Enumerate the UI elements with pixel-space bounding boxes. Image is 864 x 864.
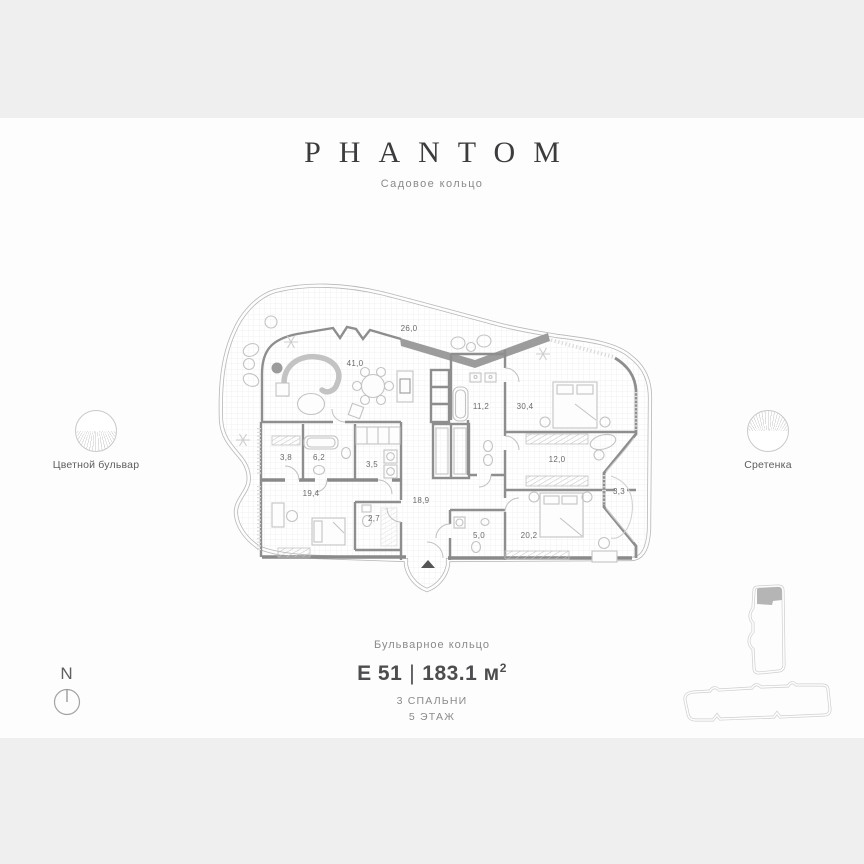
room-area-label-bedroom-2: 19,4 xyxy=(303,489,320,498)
room-area-label-terrace: 26,0 xyxy=(401,324,418,333)
slab-outline xyxy=(685,683,830,720)
sun-half-bottom-icon xyxy=(75,410,117,452)
tower-outline xyxy=(749,586,784,673)
building-locator xyxy=(680,570,850,730)
north-indicator: N xyxy=(37,664,97,716)
unit-area-unit: м xyxy=(484,662,500,685)
unit-area: 183.1 xyxy=(422,662,477,685)
listing-floorplan-page: { "colors": { "background": "#efefef", "… xyxy=(0,0,864,864)
complex-title: PHANTOM xyxy=(0,136,864,170)
headline-separator: | xyxy=(409,662,415,685)
landmark-right: Сретенка xyxy=(698,410,838,471)
room-area-label-master-bedroom: 30,4 xyxy=(517,402,534,411)
room-area-label-bathroom-4: 5,0 xyxy=(473,531,485,540)
room-area-label-living-room: 41,0 xyxy=(347,359,364,368)
complex-subtitle: Садовое кольцо xyxy=(0,178,864,190)
unit-number: Е 51 xyxy=(357,662,402,685)
room-area-label-bathroom-2: 6,2 xyxy=(313,453,325,462)
unit-area-sup: 2 xyxy=(500,661,507,675)
room-area-label-bathroom-3: 2,7 xyxy=(368,514,380,523)
room-area-label-bedroom-3: 20,2 xyxy=(521,531,538,540)
room-area-label-hallway: 18,9 xyxy=(413,496,430,505)
landmark-left-label: Цветной бульвар xyxy=(26,459,166,471)
room-area-label-bathroom-main: 11,2 xyxy=(473,402,489,411)
north-label: N xyxy=(37,664,97,684)
plan-sheet: PHANTOM Садовое кольцо Цветной бульвар С… xyxy=(0,118,864,738)
room-area-label-dressing-room: 12,0 xyxy=(549,455,566,464)
floor-plan: 26,041,011,230,43,86,23,512,019,418,93,3… xyxy=(215,270,675,600)
room-area-label-wardrobe-small: 3,8 xyxy=(280,453,292,462)
compass-circle-icon xyxy=(53,688,81,716)
sun-half-top-icon xyxy=(747,410,789,452)
room-area-label-laundry: 3,5 xyxy=(366,460,378,469)
room-area-label-balcony: 3,3 xyxy=(613,487,625,496)
landmark-left: Цветной бульвар xyxy=(26,410,166,471)
landmark-right-label: Сретенка xyxy=(698,459,838,471)
